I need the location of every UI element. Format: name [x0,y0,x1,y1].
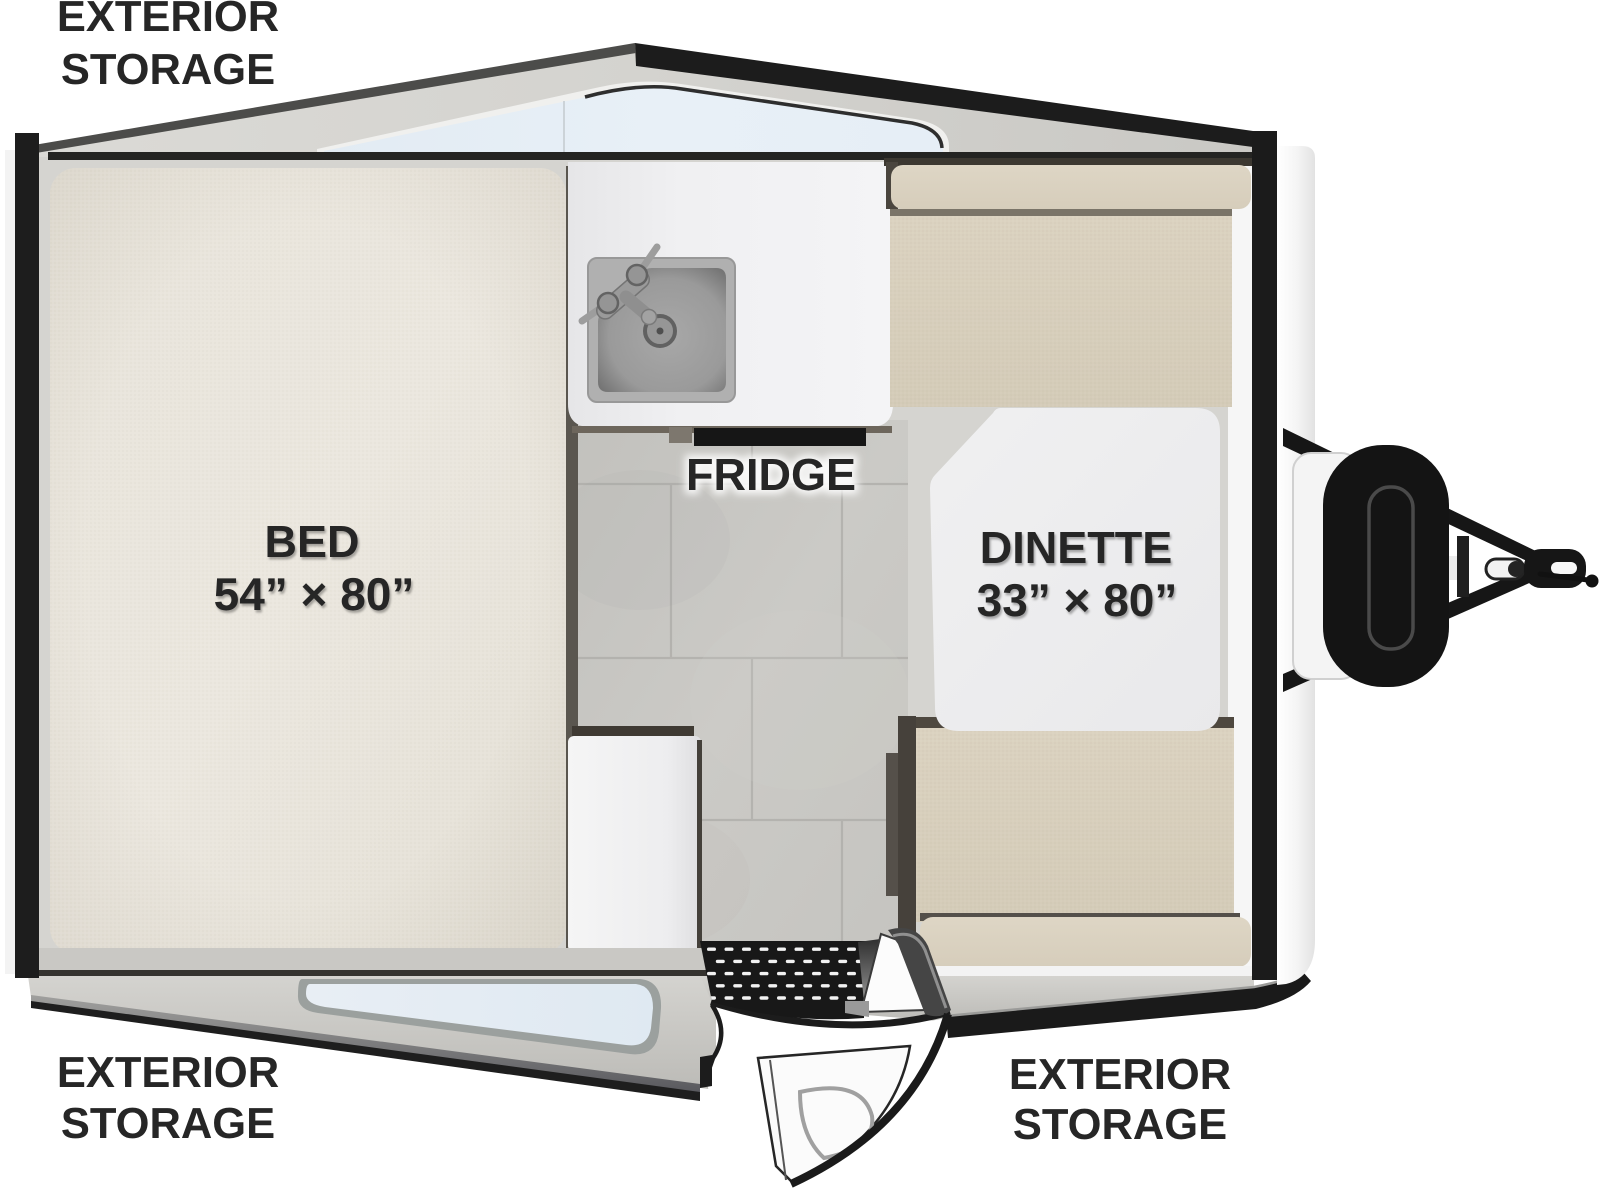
svg-text:STORAGE: STORAGE [61,46,275,94]
svg-text:DINETTE: DINETTE [980,522,1173,573]
svg-text:FRIDGE: FRIDGE [686,449,856,500]
svg-text:BED: BED [264,516,359,567]
svg-text:33” × 80”: 33” × 80” [977,574,1178,626]
svg-text:EXTERIOR: EXTERIOR [57,0,279,41]
svg-text:EXTERIOR: EXTERIOR [57,1049,279,1097]
svg-text:EXTERIOR: EXTERIOR [1009,1051,1231,1099]
svg-text:STORAGE: STORAGE [1013,1101,1227,1149]
svg-text:STORAGE: STORAGE [61,1100,275,1148]
svg-text:54” × 80”: 54” × 80” [214,568,415,620]
